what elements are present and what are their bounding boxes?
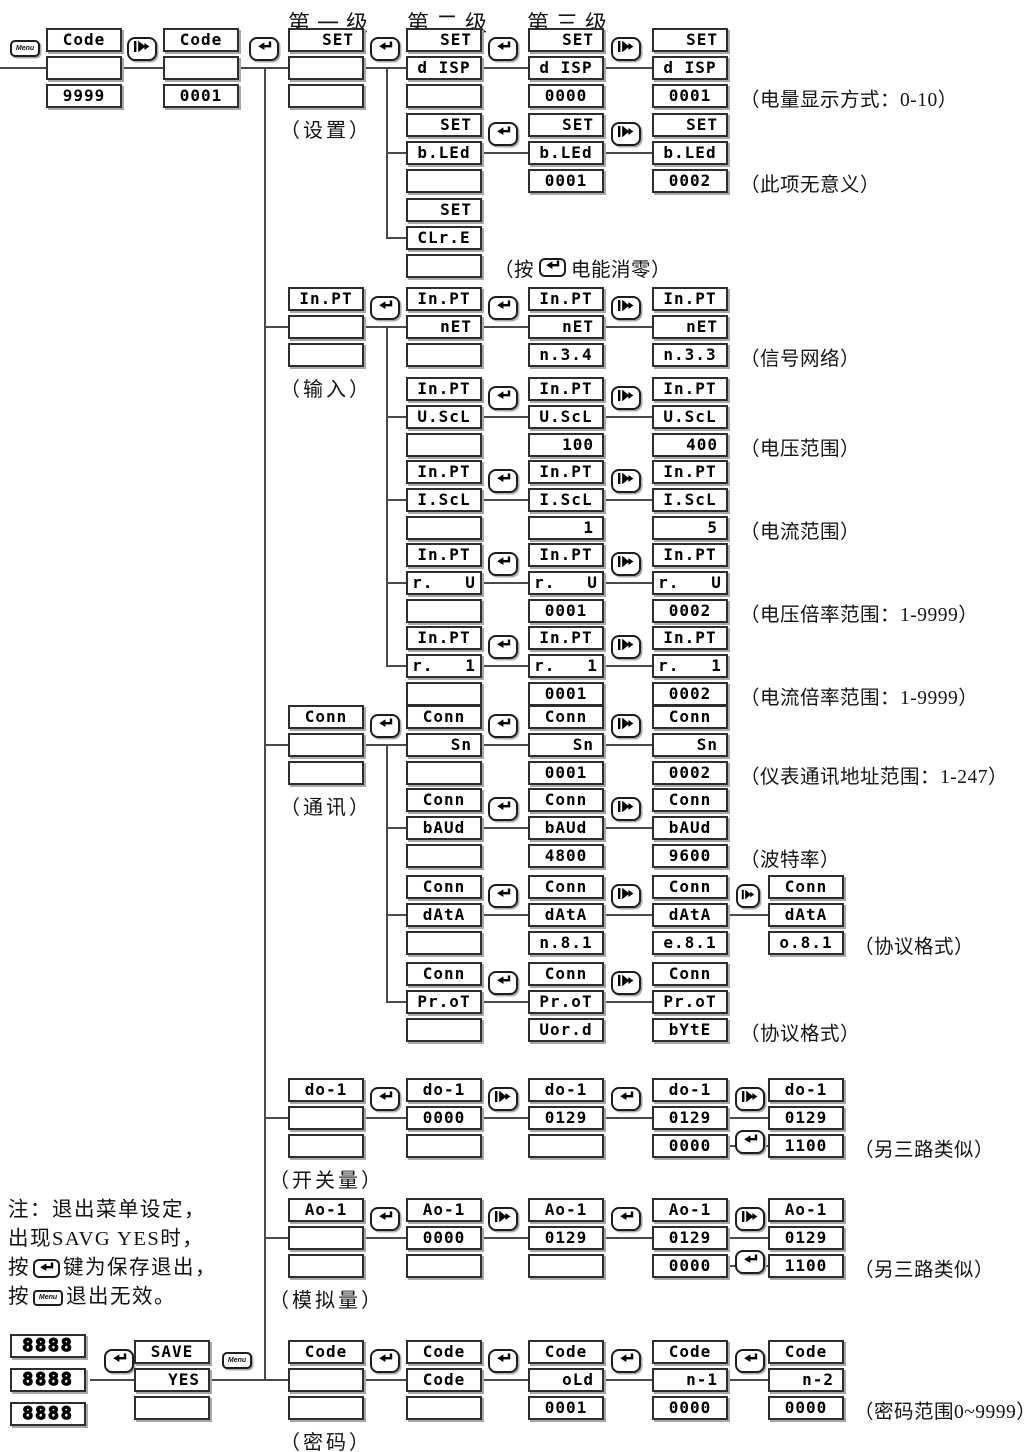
enter-button (104, 1349, 134, 1373)
menu-button: Menu (222, 1352, 252, 1369)
lcd-cell (288, 1368, 364, 1392)
lcd-cell: Pr.oT (528, 990, 604, 1014)
lcd-cell: Ao-1 (288, 1198, 364, 1222)
lcd-cell (406, 1396, 482, 1420)
lcd-cell: In.PT (652, 626, 728, 650)
advance-button (611, 635, 641, 659)
advance-icon (133, 40, 151, 58)
lcd-cell: Ao-1 (652, 1198, 728, 1222)
lcd-cell: Conn (528, 962, 604, 986)
lcd-cell: nET (528, 315, 604, 339)
lcd-cell: Sn (652, 733, 728, 757)
enter-button (735, 1130, 765, 1154)
advance-button (735, 1087, 765, 1111)
lcd-cell: do-1 (652, 1078, 728, 1102)
enter-button (249, 37, 279, 61)
lcd-cell (406, 761, 482, 785)
enter-button (735, 1250, 765, 1274)
annotation: （电压倍率范围：1-9999） (740, 599, 978, 625)
lcd-cell: r. U (406, 571, 482, 595)
lcd-cell: Conn (528, 875, 604, 899)
enter-icon (495, 638, 512, 656)
lcd-cell: Conn (406, 705, 482, 729)
advance-button (611, 797, 641, 821)
lcd-cell (528, 1254, 604, 1278)
advance-button (127, 37, 157, 61)
enter-icon (495, 389, 512, 407)
lcd-cell: oLd (528, 1368, 604, 1392)
lcd-cell (406, 1134, 482, 1158)
advance-icon (617, 40, 635, 58)
lcd-cell: 0002 (652, 761, 728, 785)
section-label: （通讯） (280, 791, 372, 820)
lcd-cell: 0001 (528, 1396, 604, 1420)
lcd-cell: bAUd (528, 816, 604, 840)
enter-button (488, 884, 518, 908)
lcd-cell: In.PT (406, 287, 482, 311)
lcd-cell: Conn (768, 875, 844, 899)
connector-line-vertical (264, 67, 266, 1381)
lcd-cell: 4800 (528, 844, 604, 868)
lcd-cell: o.8.1 (768, 931, 844, 955)
lcd-cell: 0000 (528, 84, 604, 108)
lcd-cell: do-1 (768, 1078, 844, 1102)
lcd-cell: 0000 (652, 1396, 728, 1420)
lcd-cell: SAVE (134, 1340, 210, 1364)
lcd-cell: dAtA (528, 903, 604, 927)
enter-icon (495, 974, 512, 992)
lcd-cell: r. 1 (652, 654, 728, 678)
lcd-cell (406, 682, 482, 706)
lcd-cell: 100 (528, 433, 604, 457)
lcd-cell: I.ScL (652, 488, 728, 512)
advance-button (488, 1207, 518, 1231)
advance-icon (494, 1090, 512, 1108)
advance-button (735, 1207, 765, 1231)
lcd-cell: 0001 (163, 84, 239, 108)
lcd-cell: Pr.oT (652, 990, 728, 1014)
lcd-cell: Pr.oT (406, 990, 482, 1014)
enter-button (370, 1207, 400, 1231)
lcd-cell (288, 1226, 364, 1250)
enter-icon (377, 717, 394, 735)
advance-icon (617, 389, 635, 407)
lcd-cell (46, 56, 122, 80)
lcd-cell: n-2 (768, 1368, 844, 1392)
lcd-cell (288, 733, 364, 757)
lcd-cell: Code (652, 1340, 728, 1364)
lcd-cell: 0129 (768, 1226, 844, 1250)
lcd-cell: dAtA (652, 903, 728, 927)
lcd-cell: 0129 (528, 1226, 604, 1250)
advance-button (611, 884, 641, 908)
enter-icon (495, 299, 512, 317)
lcd-cell: nET (652, 315, 728, 339)
menu-button: Menu (10, 40, 40, 57)
advance-icon (741, 1210, 759, 1228)
advance-button (611, 386, 641, 410)
lcd-cell: SET (288, 28, 364, 52)
enter-button (370, 1349, 400, 1373)
annotation: （协议格式） (854, 931, 974, 957)
enter-icon (618, 1210, 635, 1228)
lcd-cell: Ao-1 (768, 1198, 844, 1222)
lcd-cell: Conn (528, 788, 604, 812)
advance-icon (617, 299, 635, 317)
lcd-cell: 0001 (528, 169, 604, 193)
enter-button (611, 1207, 641, 1231)
lcd-cell: 0129 (768, 1106, 844, 1130)
lcd-cell: Code (46, 28, 122, 52)
advance-button (611, 122, 641, 146)
enter-button (611, 1349, 641, 1373)
enter-button (735, 1349, 765, 1373)
enter-button (488, 1349, 518, 1373)
lcd-cell: d ISP (528, 56, 604, 80)
section-label: （输入） (280, 373, 372, 402)
lcd-cell: 400 (652, 433, 728, 457)
lcd-cell: do-1 (406, 1078, 482, 1102)
lcd-cell: YES (134, 1368, 210, 1392)
lcd-cell (288, 1134, 364, 1158)
lcd-cell: 0001 (528, 682, 604, 706)
lcd-cell (288, 1396, 364, 1420)
lcd-cell: n-1 (652, 1368, 728, 1392)
lcd-cell: In.PT (528, 460, 604, 484)
lcd-cell (134, 1396, 210, 1420)
lcd-cell: Code (288, 1340, 364, 1364)
lcd-cell: Code (528, 1340, 604, 1364)
lcd-cell (288, 56, 364, 80)
lcd-cell (288, 761, 364, 785)
lcd-cell: 8888 (10, 1334, 86, 1358)
lcd-cell: In.PT (406, 460, 482, 484)
advance-icon (494, 1210, 512, 1228)
lcd-cell: Conn (652, 962, 728, 986)
lcd-cell: 0000 (652, 1134, 728, 1158)
section-label: （模拟量） (269, 1284, 384, 1313)
enter-icon (495, 800, 512, 818)
lcd-cell: U.ScL (652, 405, 728, 429)
annotation: （协议格式） (740, 1018, 860, 1044)
lcd-cell: do-1 (528, 1078, 604, 1102)
lcd-cell (406, 1018, 482, 1042)
enter-button (488, 386, 518, 410)
lcd-cell: do-1 (288, 1078, 364, 1102)
enter-icon (618, 1352, 635, 1370)
lcd-cell (406, 931, 482, 955)
advance-button (611, 714, 641, 738)
lcd-cell: SET (528, 113, 604, 137)
lcd-cell: 0001 (652, 84, 728, 108)
lcd-cell: n.3.4 (528, 343, 604, 367)
enter-button (488, 714, 518, 738)
lcd-cell: b.LEd (528, 141, 604, 165)
lcd-cell: Conn (406, 875, 482, 899)
note-line-2: 出现SAVG YES时， (8, 1225, 217, 1254)
connector-line-vertical (386, 326, 388, 667)
lcd-cell: SET (406, 198, 482, 222)
lcd-cell: In.PT (406, 626, 482, 650)
lcd-cell: SET (652, 28, 728, 52)
enter-icon (495, 887, 512, 905)
lcd-cell (406, 844, 482, 868)
lcd-cell: Ao-1 (406, 1198, 482, 1222)
lcd-cell (406, 599, 482, 623)
lcd-cell (528, 1134, 604, 1158)
lcd-cell: Conn (528, 705, 604, 729)
lcd-cell: 0129 (652, 1226, 728, 1250)
enter-button (370, 1087, 400, 1111)
lcd-cell: Code (768, 1340, 844, 1364)
lcd-cell: 1100 (768, 1134, 844, 1158)
lcd-cell: Ao-1 (528, 1198, 604, 1222)
lcd-cell: bAUd (652, 816, 728, 840)
lcd-cell: dAtA (768, 903, 844, 927)
enter-icon (495, 472, 512, 490)
advance-icon (741, 887, 755, 905)
enter-button (488, 797, 518, 821)
note-line-3: 按键为保存退出， (8, 1254, 217, 1283)
lcd-cell (163, 56, 239, 80)
advance-icon (617, 800, 635, 818)
lcd-cell: 0002 (652, 599, 728, 623)
enter-icon (495, 125, 512, 143)
lcd-cell: In.PT (652, 543, 728, 567)
enter-icon (377, 299, 394, 317)
advance-button (611, 469, 641, 493)
lcd-cell: n.3.3 (652, 343, 728, 367)
lcd-cell: 5 (652, 516, 728, 540)
enter-icon (618, 1090, 635, 1108)
annotation: （此项无意义） (740, 169, 880, 195)
annotation: （仪表通讯地址范围：1-247） (740, 761, 1008, 787)
enter-button (488, 971, 518, 995)
annotation: （信号网络） (740, 343, 860, 369)
enter-button (488, 552, 518, 576)
lcd-cell: Code (163, 28, 239, 52)
lcd-cell: In.PT (652, 460, 728, 484)
enter-icon (495, 40, 512, 58)
lcd-cell: Conn (406, 962, 482, 986)
annotation: （另三路类似） (854, 1134, 994, 1160)
enter-button (370, 714, 400, 738)
lcd-cell (288, 1106, 364, 1130)
lcd-cell: 0000 (768, 1396, 844, 1420)
enter-button (33, 1259, 60, 1278)
advance-icon (617, 974, 635, 992)
lcd-cell: n.8.1 (528, 931, 604, 955)
lcd-cell: In.PT (528, 287, 604, 311)
lcd-cell: U.ScL (528, 405, 604, 429)
lcd-cell: r. U (528, 571, 604, 595)
lcd-cell: In.PT (528, 543, 604, 567)
annotation: （波特率） (740, 844, 840, 870)
lcd-cell: SET (406, 113, 482, 137)
connector-line-vertical (386, 744, 388, 1003)
lcd-cell: dAtA (406, 903, 482, 927)
annotation-text: （按 (494, 253, 534, 282)
lcd-cell: In.PT (652, 287, 728, 311)
lcd-cell: 0129 (652, 1106, 728, 1130)
enter-button (370, 296, 400, 320)
lcd-cell: bYtE (652, 1018, 728, 1042)
lcd-cell: r. 1 (528, 654, 604, 678)
enter-icon (256, 40, 273, 58)
lcd-cell: SET (652, 113, 728, 137)
advance-button (611, 552, 641, 576)
lcd-cell (406, 254, 482, 278)
enter-icon (377, 40, 394, 58)
lcd-cell: In.PT (528, 626, 604, 650)
lcd-cell (406, 343, 482, 367)
lcd-cell: nET (406, 315, 482, 339)
annotation: （另三路类似） (854, 1254, 994, 1280)
lcd-cell: 0001 (528, 761, 604, 785)
section-label: （设置） (280, 114, 372, 143)
lcd-cell: 0000 (406, 1226, 482, 1250)
lcd-cell: U.ScL (406, 405, 482, 429)
annotation: （电流范围） (740, 516, 860, 542)
lcd-cell (288, 315, 364, 339)
lcd-cell (288, 84, 364, 108)
note-text: 注：退出菜单设定， 出现SAVG YES时， 按键为保存退出， 按Menu退出无… (8, 1196, 217, 1312)
advance-icon (617, 638, 635, 656)
enter-icon (38, 1254, 55, 1283)
section-label: （开关量） (269, 1164, 384, 1193)
lcd-cell: 0000 (406, 1106, 482, 1130)
enter-icon (377, 1090, 394, 1108)
advance-icon (741, 1090, 759, 1108)
lcd-cell: 8888 (10, 1402, 86, 1426)
lcd-cell: 1 (528, 516, 604, 540)
lcd-cell: 8888 (10, 1368, 86, 1392)
lcd-cell: Sn (406, 733, 482, 757)
lcd-cell: 0000 (652, 1254, 728, 1278)
lcd-cell: e.8.1 (652, 931, 728, 955)
enter-button (539, 258, 566, 277)
annotation: （按电能消零） (494, 254, 671, 280)
lcd-cell (406, 84, 482, 108)
note-line-1: 注：退出菜单设定， (8, 1196, 217, 1225)
enter-button (488, 469, 518, 493)
lcd-cell: In.PT (406, 543, 482, 567)
lcd-cell: In.PT (288, 287, 364, 311)
lcd-cell: r. U (652, 571, 728, 595)
lcd-cell: d ISP (652, 56, 728, 80)
lcd-cell: 9600 (652, 844, 728, 868)
lcd-cell: In.PT (528, 377, 604, 401)
enter-icon (377, 1352, 394, 1370)
enter-icon (495, 1352, 512, 1370)
lcd-cell (406, 1254, 482, 1278)
lcd-cell: CLr.E (406, 226, 482, 250)
enter-button (488, 122, 518, 146)
lcd-cell: Conn (406, 788, 482, 812)
enter-icon (377, 1210, 394, 1228)
advance-icon (617, 887, 635, 905)
advance-icon (617, 717, 635, 735)
lcd-cell: r. 1 (406, 654, 482, 678)
lcd-cell: b.LEd (652, 141, 728, 165)
lcd-cell (406, 169, 482, 193)
lcd-cell: 0002 (652, 169, 728, 193)
enter-icon (495, 555, 512, 573)
section-label: （密码） (280, 1426, 372, 1452)
lcd-cell: Conn (288, 705, 364, 729)
annotation-text: 电能消零） (571, 253, 671, 282)
lcd-cell: b.LEd (406, 141, 482, 165)
enter-button (488, 635, 518, 659)
lcd-cell: Code (406, 1340, 482, 1364)
lcd-cell: d ISP (406, 56, 482, 80)
enter-button (611, 1087, 641, 1111)
annotation: （电流倍率范围：1-9999） (740, 682, 978, 708)
enter-button (488, 296, 518, 320)
lcd-cell: 1100 (768, 1254, 844, 1278)
lcd-cell: Conn (652, 705, 728, 729)
lcd-cell: In.PT (652, 377, 728, 401)
lcd-cell: 0002 (652, 682, 728, 706)
lcd-cell: In.PT (406, 377, 482, 401)
lcd-cell: Conn (652, 875, 728, 899)
menu-button: Menu (33, 1290, 63, 1306)
advance-button (488, 1087, 518, 1111)
lcd-cell: Conn (652, 788, 728, 812)
note-line-4: 按Menu退出无效。 (8, 1283, 217, 1312)
enter-button (370, 37, 400, 61)
enter-icon (742, 1352, 759, 1370)
lcd-cell: Uor.d (528, 1018, 604, 1042)
lcd-cell: I.ScL (528, 488, 604, 512)
lcd-cell: I.ScL (406, 488, 482, 512)
advance-button (611, 37, 641, 61)
lcd-cell: 0001 (528, 599, 604, 623)
enter-icon (495, 717, 512, 735)
lcd-cell (406, 516, 482, 540)
enter-icon (742, 1133, 759, 1151)
lcd-cell (406, 433, 482, 457)
lcd-cell (288, 343, 364, 367)
lcd-cell: Sn (528, 733, 604, 757)
lcd-cell: SET (406, 28, 482, 52)
advance-icon (617, 472, 635, 490)
lcd-cell: Code (406, 1368, 482, 1392)
lcd-cell: bAUd (406, 816, 482, 840)
advance-button (736, 884, 760, 908)
advance-button (611, 296, 641, 320)
lcd-cell (288, 1254, 364, 1278)
advance-icon (617, 125, 635, 143)
enter-button (488, 37, 518, 61)
lcd-cell: 9999 (46, 84, 122, 108)
annotation: （电量显示方式：0-10） (740, 84, 958, 110)
lcd-cell: SET (528, 28, 604, 52)
enter-icon (742, 1253, 759, 1271)
annotation: （密码范围0~9999） (854, 1396, 1034, 1422)
menu-flow-diagram: 第一级 第二级 第三级 注：退出菜单设定， 出现SAVG YES时， 按键为保存… (0, 0, 1034, 1452)
lcd-cell: 0129 (528, 1106, 604, 1130)
advance-icon (617, 555, 635, 573)
advance-button (611, 971, 641, 995)
annotation: （电压范围） (740, 433, 860, 459)
enter-icon (111, 1352, 128, 1370)
enter-icon (544, 256, 561, 278)
